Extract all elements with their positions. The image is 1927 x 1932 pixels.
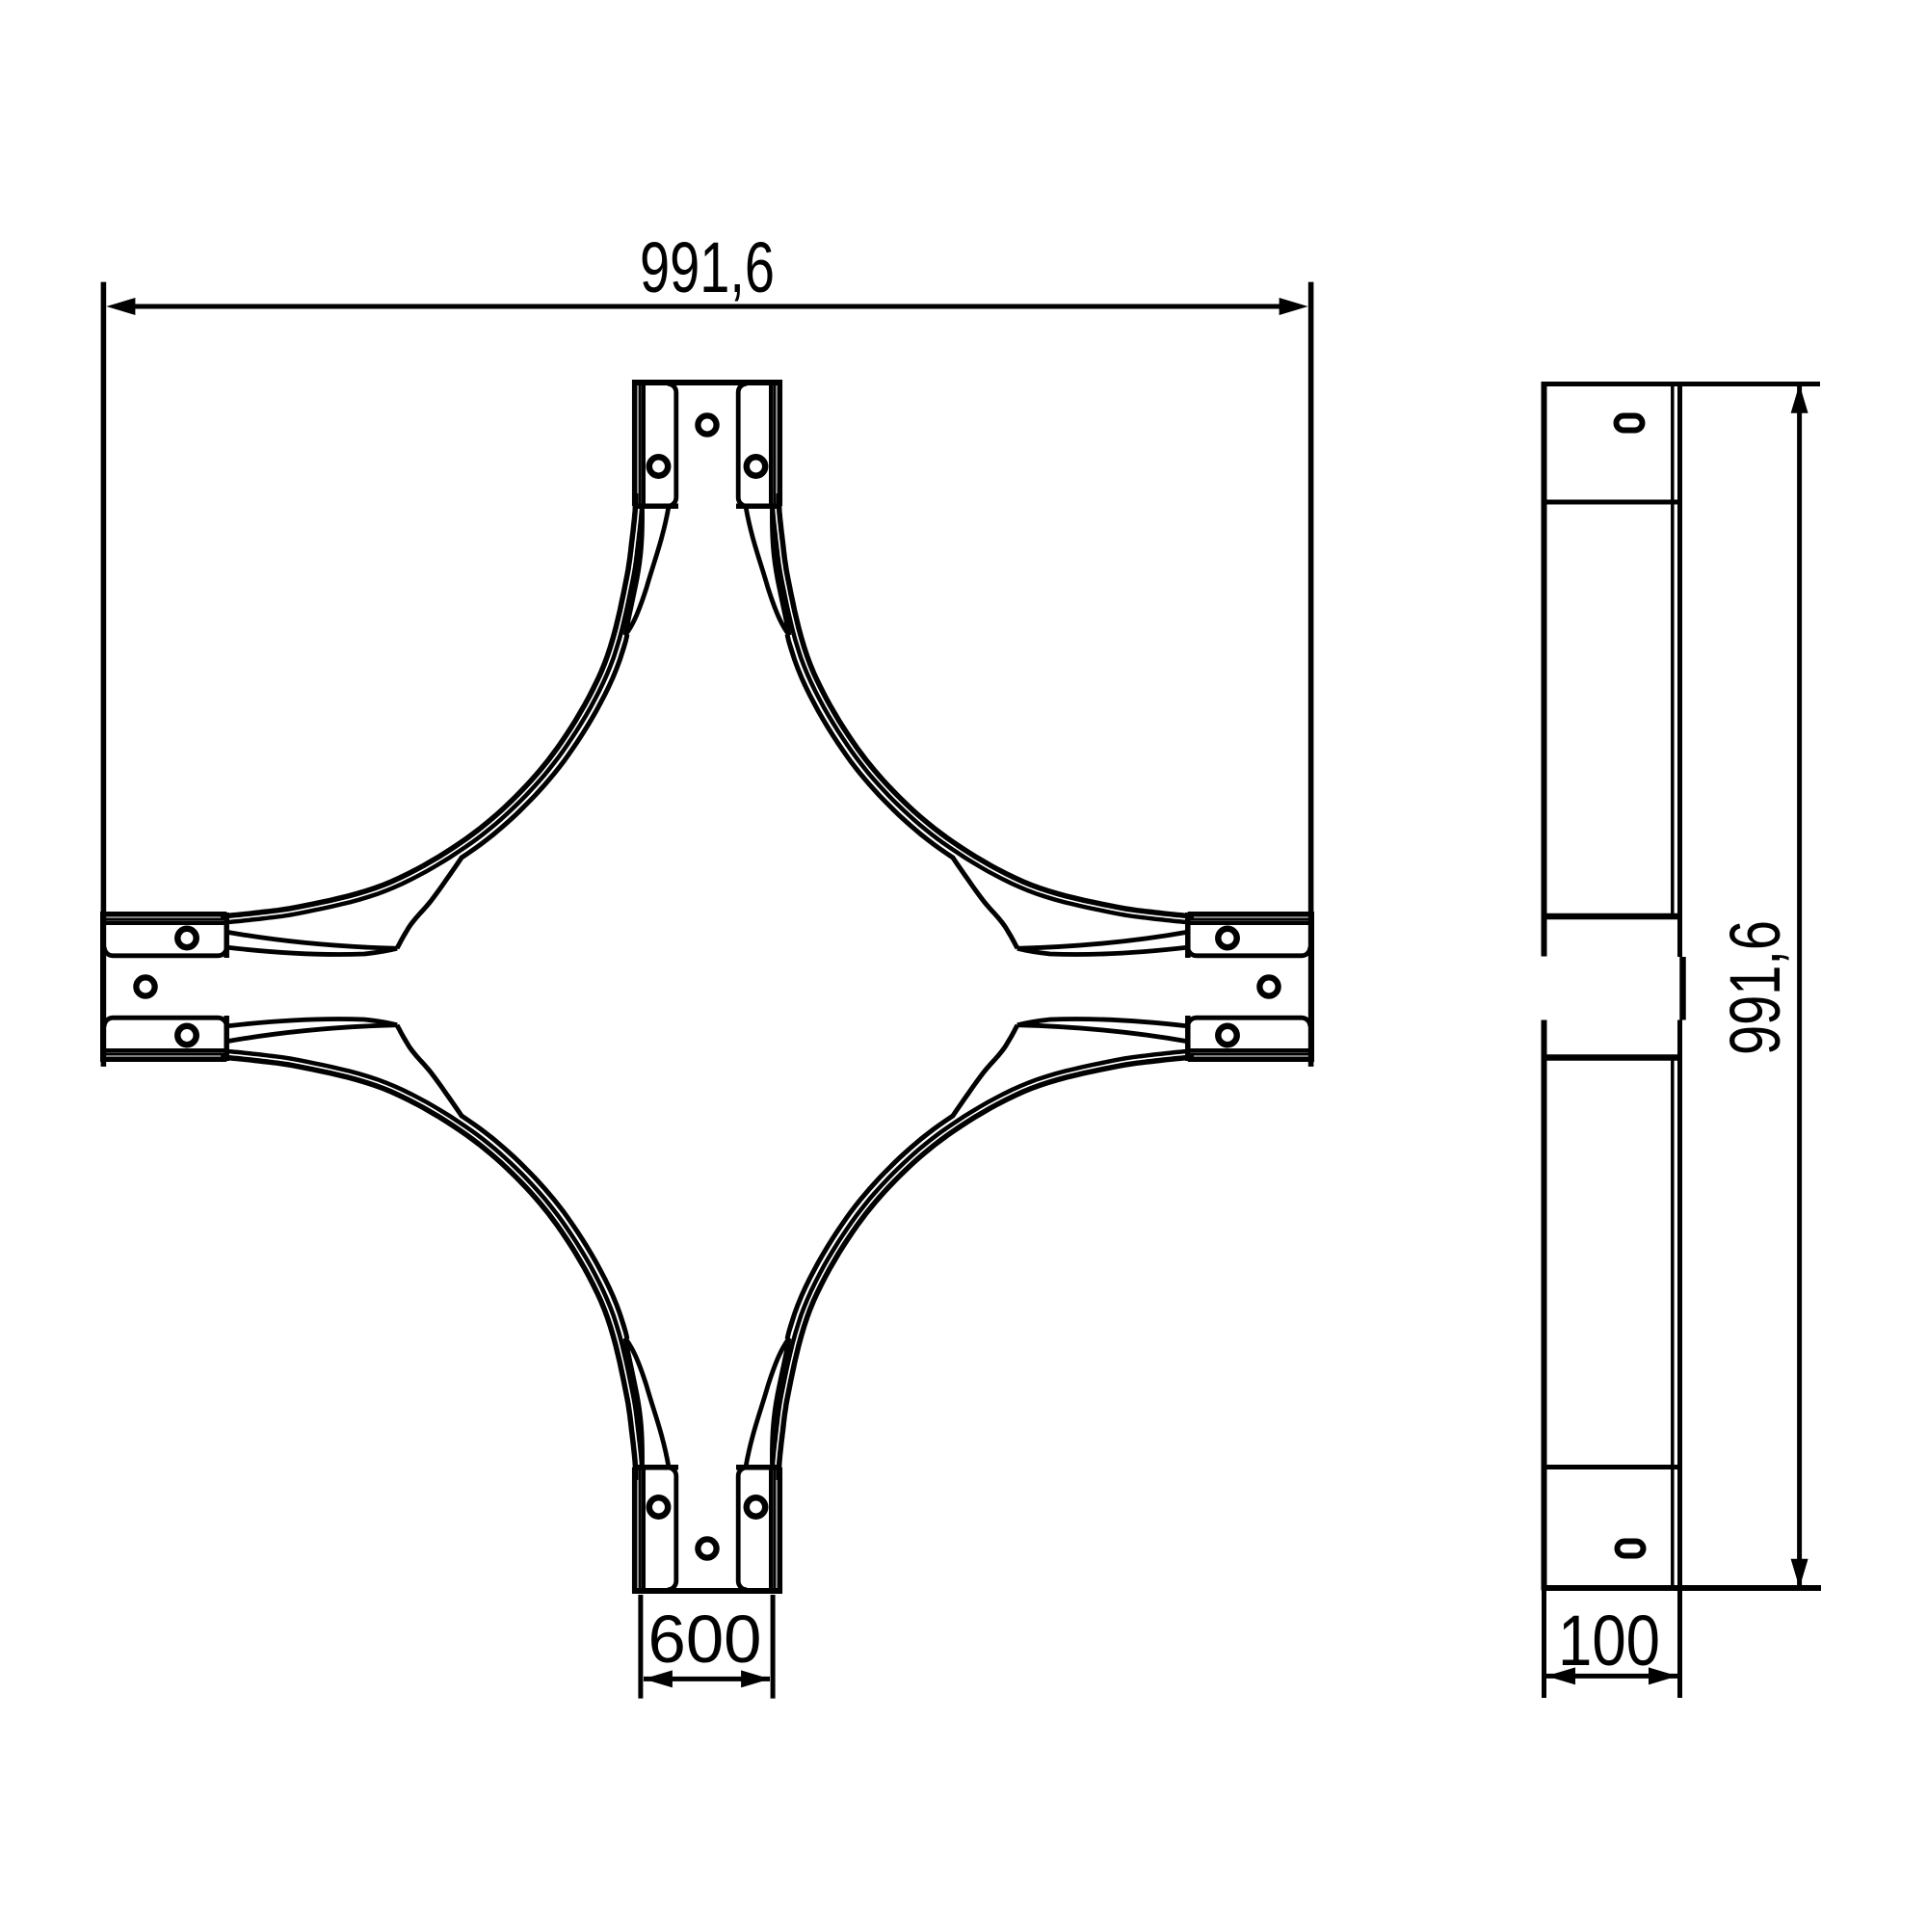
svg-text:600: 600 bbox=[648, 1601, 762, 1677]
svg-text:100: 100 bbox=[1558, 1601, 1660, 1681]
svg-text:991,6: 991,6 bbox=[640, 227, 775, 307]
svg-text:991,6: 991,6 bbox=[1715, 920, 1795, 1055]
